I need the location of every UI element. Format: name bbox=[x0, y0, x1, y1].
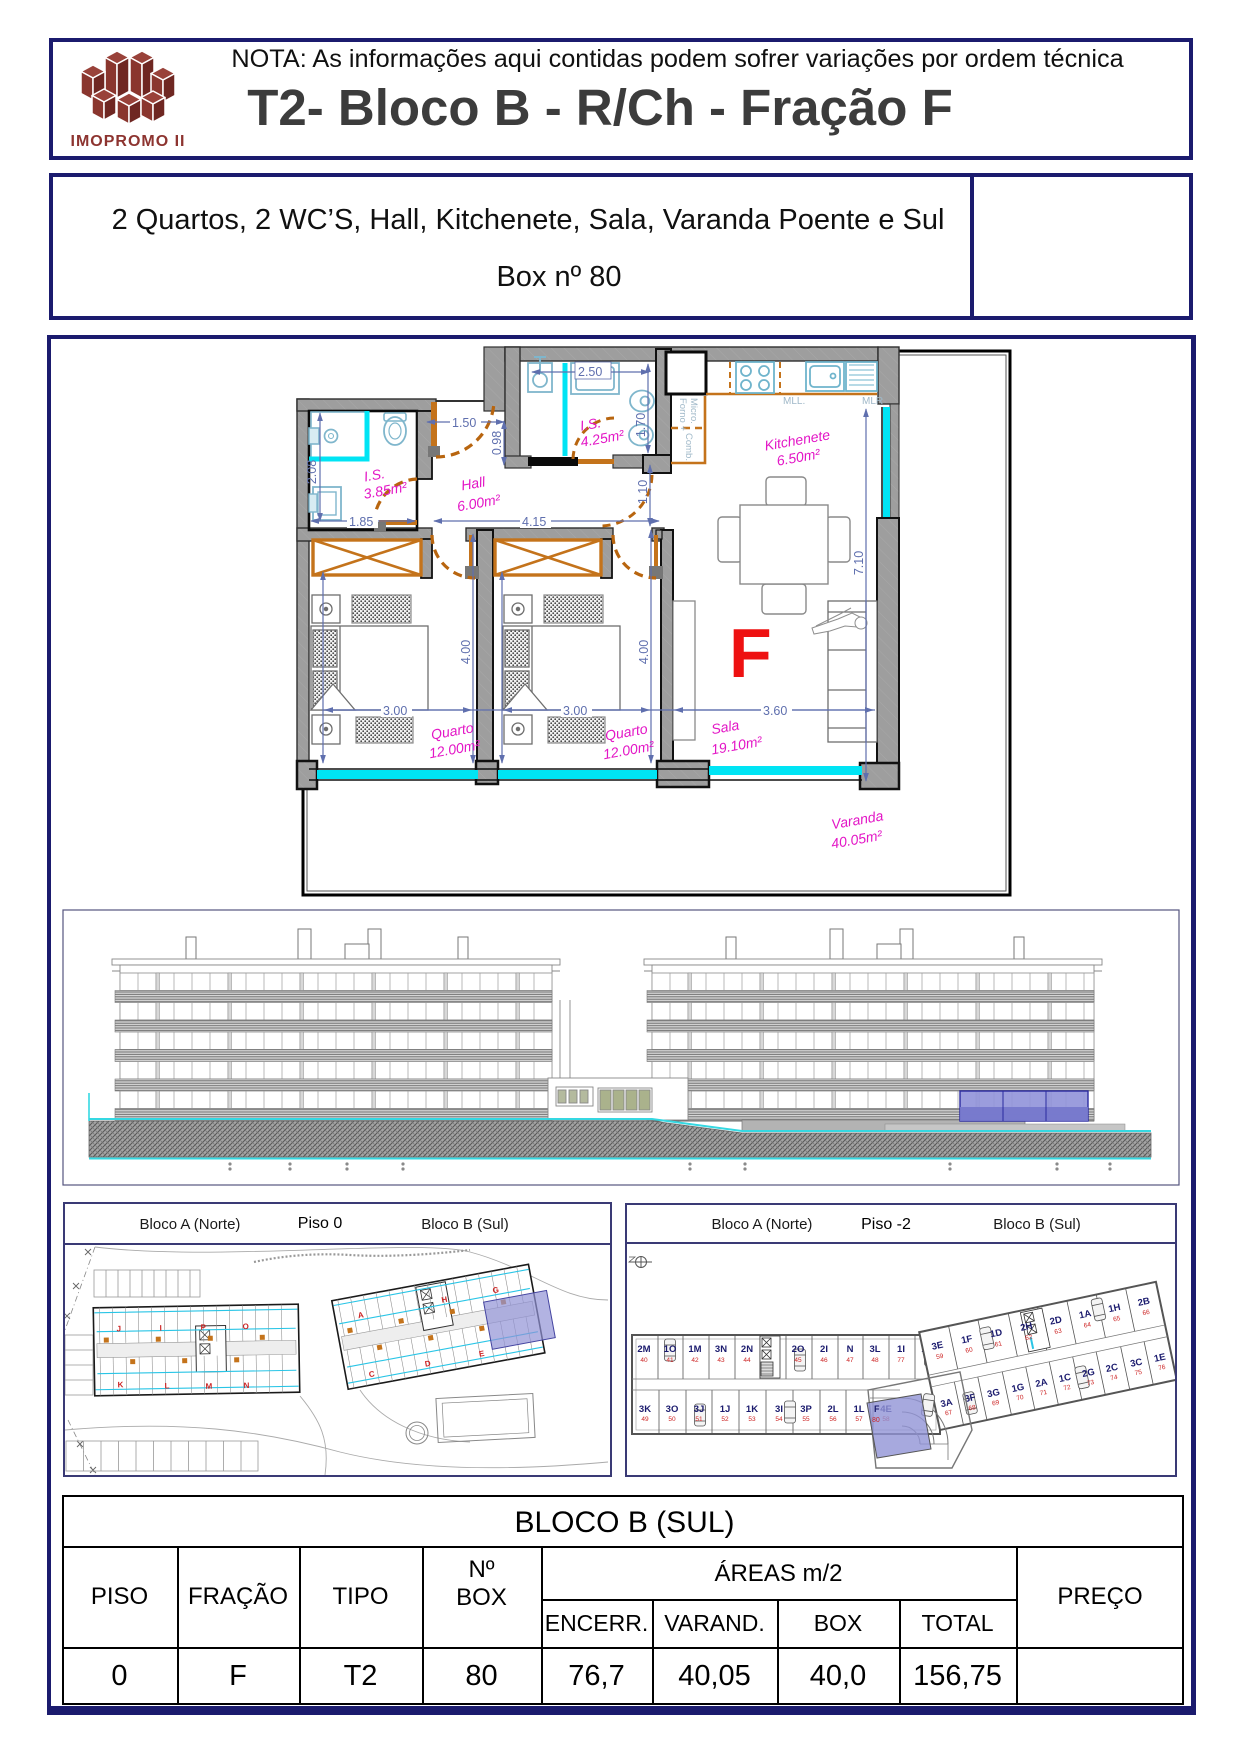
svg-text:1J: 1J bbox=[720, 1404, 731, 1415]
svg-text:4.00: 4.00 bbox=[459, 640, 473, 664]
svg-text:54: 54 bbox=[775, 1416, 783, 1423]
svg-text:1.70: 1.70 bbox=[634, 413, 648, 437]
svg-text:J: J bbox=[117, 1324, 122, 1333]
svg-text:2O: 2O bbox=[792, 1344, 805, 1355]
svg-text:57: 57 bbox=[855, 1416, 863, 1423]
svg-text:52: 52 bbox=[721, 1416, 729, 1423]
svg-text:55: 55 bbox=[802, 1416, 810, 1423]
svg-text:50: 50 bbox=[668, 1416, 676, 1423]
svg-text:53: 53 bbox=[748, 1416, 756, 1423]
svg-text:47: 47 bbox=[846, 1357, 854, 1364]
svg-text:80: 80 bbox=[872, 1417, 880, 1424]
svg-text:1.50: 1.50 bbox=[452, 416, 476, 430]
svg-text:46: 46 bbox=[820, 1357, 828, 1364]
svg-text:56: 56 bbox=[829, 1416, 837, 1423]
svg-text:1L: 1L bbox=[853, 1404, 864, 1415]
svg-text:MLL.: MLL. bbox=[783, 396, 805, 407]
svg-text:77: 77 bbox=[897, 1357, 905, 1364]
svg-text:Micro.: Micro. bbox=[688, 398, 699, 424]
svg-text:44: 44 bbox=[743, 1357, 751, 1364]
svg-text:3N: 3N bbox=[715, 1344, 727, 1355]
svg-text:41: 41 bbox=[666, 1357, 674, 1364]
svg-text:3O: 3O bbox=[666, 1404, 679, 1415]
svg-text:P: P bbox=[201, 1323, 207, 1332]
svg-text:1K: 1K bbox=[746, 1404, 758, 1415]
svg-text:N: N bbox=[244, 1381, 250, 1390]
svg-text:3P: 3P bbox=[800, 1404, 812, 1415]
svg-text:43: 43 bbox=[717, 1357, 725, 1364]
svg-text:Comb.: Comb. bbox=[683, 433, 694, 461]
svg-text:1O: 1O bbox=[664, 1344, 677, 1355]
svg-text:3.00: 3.00 bbox=[563, 704, 587, 718]
svg-text:6.00m²: 6.00m² bbox=[456, 491, 503, 515]
svg-text:40: 40 bbox=[640, 1357, 648, 1364]
svg-text:M: M bbox=[206, 1382, 213, 1391]
svg-text:I: I bbox=[160, 1324, 162, 1333]
svg-text:2I: 2I bbox=[820, 1344, 828, 1355]
svg-text:MLR: MLR bbox=[862, 396, 883, 407]
svg-text:L: L bbox=[165, 1381, 170, 1390]
svg-text:3K: 3K bbox=[639, 1404, 651, 1415]
svg-text:2L: 2L bbox=[827, 1404, 838, 1415]
svg-text:F: F bbox=[729, 614, 772, 692]
svg-text:Hall: Hall bbox=[460, 473, 487, 493]
svg-text:3.60: 3.60 bbox=[763, 704, 787, 718]
svg-text:42: 42 bbox=[691, 1357, 699, 1364]
svg-text:4.15: 4.15 bbox=[522, 515, 546, 529]
svg-text:2.08: 2.08 bbox=[305, 460, 319, 484]
svg-text:2N: 2N bbox=[741, 1344, 753, 1355]
svg-text:2.50: 2.50 bbox=[578, 365, 602, 379]
svg-text:48: 48 bbox=[871, 1357, 879, 1364]
svg-text:K: K bbox=[118, 1380, 124, 1389]
svg-text:1M: 1M bbox=[688, 1344, 701, 1355]
svg-text:3J: 3J bbox=[694, 1404, 705, 1415]
svg-text:3.00: 3.00 bbox=[383, 704, 407, 718]
svg-text:Forno +: Forno + bbox=[677, 398, 688, 431]
svg-text:F: F bbox=[874, 1404, 880, 1414]
svg-text:1I: 1I bbox=[897, 1344, 905, 1355]
svg-text:3L: 3L bbox=[869, 1344, 880, 1355]
svg-text:45: 45 bbox=[794, 1357, 802, 1364]
svg-text:N: N bbox=[847, 1344, 854, 1355]
svg-text:4.00: 4.00 bbox=[637, 640, 651, 664]
svg-text:49: 49 bbox=[641, 1416, 649, 1423]
svg-text:0.98: 0.98 bbox=[490, 431, 504, 455]
svg-text:O: O bbox=[243, 1322, 249, 1331]
svg-text:3I: 3I bbox=[775, 1404, 783, 1415]
svg-text:2M: 2M bbox=[637, 1344, 650, 1355]
svg-text:1.85: 1.85 bbox=[349, 515, 373, 529]
svg-text:7.10: 7.10 bbox=[852, 551, 866, 575]
svg-text:1.10: 1.10 bbox=[636, 480, 650, 504]
svg-text:51: 51 bbox=[695, 1416, 703, 1423]
